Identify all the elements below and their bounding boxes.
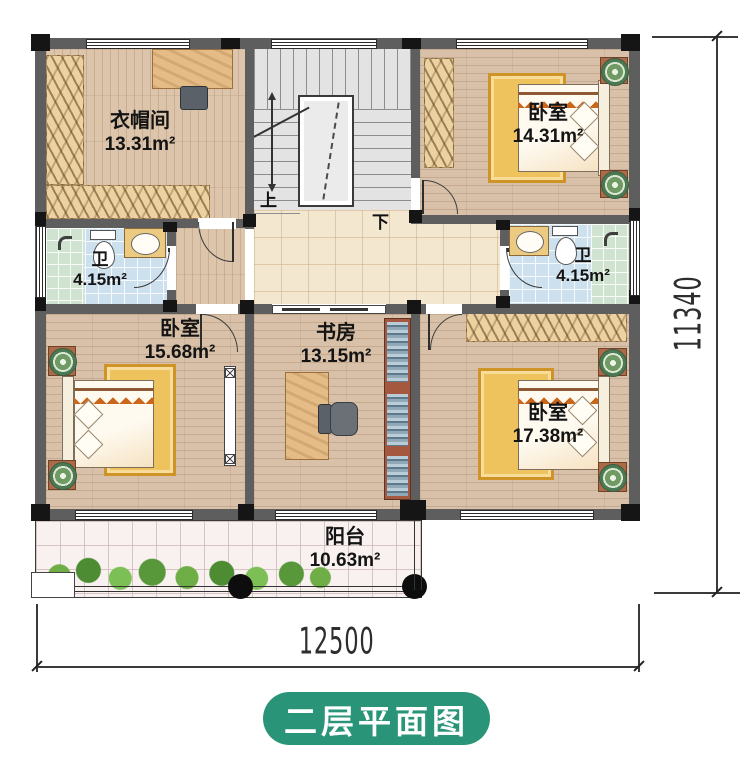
column-block (35, 297, 46, 311)
column-block (31, 34, 50, 51)
bookshelf-books (387, 394, 408, 446)
bedroom-w-sliding-panel (224, 366, 236, 466)
cloakroom-wardrobe-left (46, 55, 84, 185)
stair-down-label: 下 (372, 208, 389, 233)
room-name: 卧室 (528, 102, 568, 126)
room-name: 卫 (92, 250, 109, 270)
room-name: 卧室 (160, 318, 200, 342)
room-area: 13.15m² (301, 346, 372, 368)
floor-plan-title: 二层平面图 (284, 695, 469, 743)
column-block (621, 504, 640, 521)
window (456, 39, 588, 49)
bedroom-ne-wardrobe (424, 58, 454, 168)
column-block (409, 210, 422, 223)
room-name: 书房 (316, 322, 356, 346)
cloakroom-computer (180, 86, 208, 110)
room-label-bath-east: 卫 4.15m² (538, 246, 628, 286)
dimension-value: 11340 (667, 275, 710, 351)
column-block (240, 300, 254, 314)
column-block (407, 300, 421, 314)
balcony-right-rail (414, 520, 422, 590)
plant-icon (601, 171, 629, 199)
room-name: 卫 (575, 246, 592, 266)
balcony-corner-notch (31, 572, 75, 598)
wall-study-east (411, 304, 420, 509)
cloakroom-wardrobe-bottom (46, 185, 210, 219)
column-block (243, 214, 256, 227)
dimension-width-label: 12500 (277, 624, 397, 658)
column-block (402, 38, 421, 49)
wall-study-west (245, 304, 254, 509)
shower-icon (58, 236, 72, 250)
stair-direction-line (271, 100, 273, 184)
wall-mid-horizontal (462, 304, 640, 314)
window (271, 39, 377, 49)
dimension-extension (654, 592, 740, 594)
room-area: 4.15m² (556, 266, 610, 286)
plant-icon (599, 464, 627, 492)
room-area: 4.15m² (73, 270, 127, 290)
room-name: 衣帽间 (110, 110, 170, 134)
plant-icon (599, 349, 627, 377)
window (86, 39, 190, 49)
column-block (221, 38, 240, 49)
column-block (163, 300, 177, 312)
room-label-bedroom-se: 卧室 17.38m² (488, 402, 608, 448)
window (630, 220, 640, 296)
room-label-bath-west: 卫 4.15m² (55, 250, 145, 290)
column-block (31, 504, 50, 521)
room-name: 阳台 (325, 526, 365, 550)
room-label-bedroom-ne: 卧室 14.31m² (488, 102, 608, 148)
plant-icon (49, 348, 77, 376)
stair-up-label: 上 (260, 186, 277, 211)
dimension-height-label: 11340 (670, 233, 706, 393)
dimension-line-right (716, 37, 718, 593)
slider-end-box (225, 368, 235, 378)
dimension-extension (652, 36, 738, 38)
bedroom-w-headboard (62, 376, 74, 472)
bedroom-se-wardrobe (466, 312, 627, 342)
room-label-balcony: 阳台 10.63m² (295, 526, 395, 572)
wall-stair-left (245, 49, 254, 229)
dimension-extension (36, 604, 38, 672)
balcony-column (228, 574, 253, 599)
door-gap (426, 304, 462, 314)
plant-icon (601, 58, 629, 86)
window (75, 510, 193, 520)
room-label-study: 书房 13.15m² (276, 322, 396, 368)
toilet-icon (90, 230, 116, 240)
shower-icon (604, 232, 618, 246)
window (36, 226, 46, 298)
stair-flight-right (352, 109, 411, 210)
study-sliding-door-panel (330, 308, 368, 311)
wall-stair-right (411, 49, 420, 178)
room-label-cloakroom: 衣帽间 13.31m² (80, 110, 200, 156)
room-area: 14.31m² (513, 126, 584, 148)
wall-bedroom-ne-south (411, 215, 629, 224)
dimension-value: 12500 (299, 620, 375, 663)
column-block (621, 34, 640, 51)
column-block (400, 500, 426, 520)
study-chair (330, 402, 358, 436)
room-name: 卧室 (528, 402, 568, 426)
window (460, 510, 594, 520)
toilet-icon (552, 226, 578, 236)
door-gap (196, 304, 238, 314)
dimension-line-bottom (36, 666, 640, 668)
column-block (496, 220, 510, 230)
room-area: 13.31m² (105, 134, 176, 156)
study-sliding-door-panel (282, 308, 320, 311)
door-leaf (232, 222, 234, 262)
column-block (163, 222, 177, 232)
slider-end-box (225, 454, 235, 464)
room-area: 10.63m² (310, 550, 381, 572)
column-block (238, 504, 254, 520)
room-area: 17.38m² (513, 426, 584, 448)
column-block (496, 296, 510, 308)
cloakroom-desk (152, 49, 233, 89)
floor-plan-title-badge: 二层平面图 (263, 692, 490, 745)
column-block (35, 212, 46, 226)
room-area: 15.68m² (145, 342, 216, 364)
dimension-extension (638, 604, 640, 672)
bookshelf-books (387, 456, 408, 496)
door-gap (411, 178, 420, 210)
stair-arrow-up (268, 92, 276, 100)
plant-icon (49, 462, 77, 490)
window (275, 510, 377, 520)
stair-well-void (298, 95, 354, 207)
floor-plan-page: 上 下 (0, 0, 750, 767)
room-label-bedroom-w: 卧室 15.68m² (120, 318, 240, 364)
